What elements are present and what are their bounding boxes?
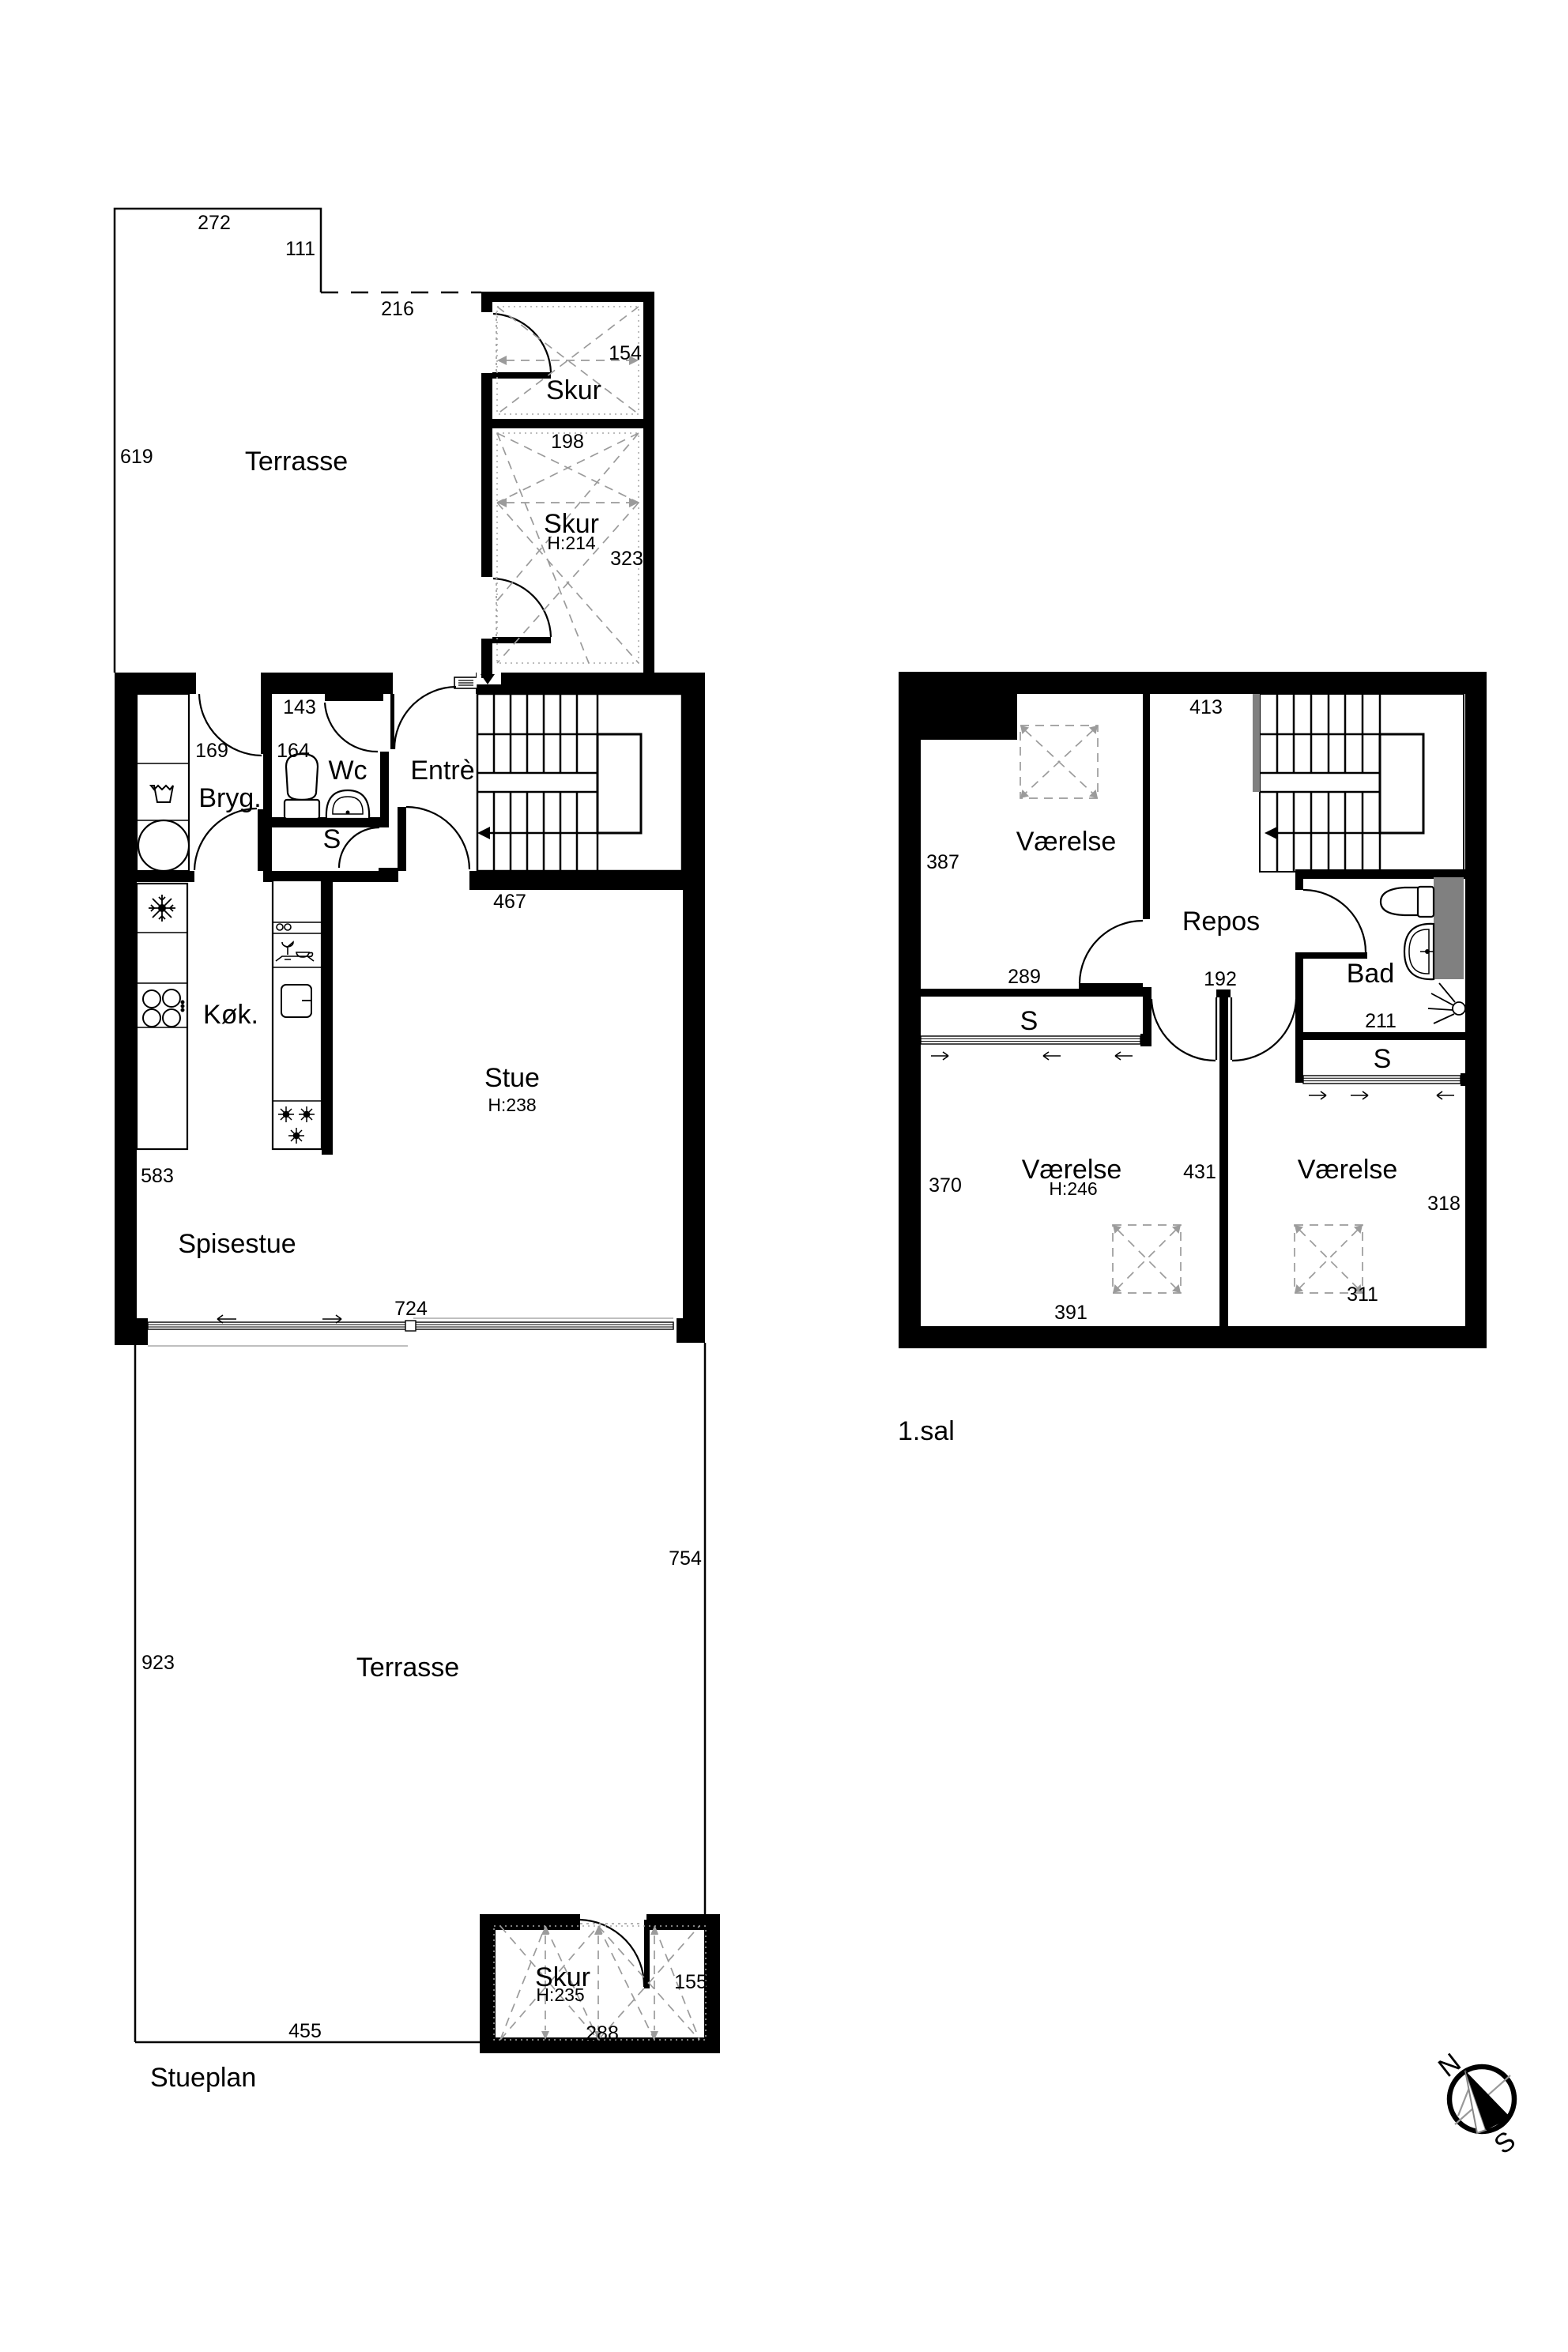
svg-text:455: 455 [288, 2020, 322, 2042]
svg-text:391: 391 [1054, 1302, 1087, 1324]
svg-text:370: 370 [929, 1174, 962, 1197]
svg-text:Stueplan: Stueplan [150, 2063, 256, 2093]
svg-text:H:238: H:238 [488, 1095, 536, 1115]
svg-text:724: 724 [394, 1298, 428, 1320]
svg-text:323: 323 [610, 548, 643, 570]
svg-text:155: 155 [674, 1971, 707, 1993]
svg-text:289: 289 [1008, 966, 1041, 988]
svg-text:169: 169 [195, 740, 228, 762]
svg-text:1.sal: 1.sal [898, 1416, 955, 1446]
svg-text:S: S [1374, 1044, 1392, 1074]
svg-text:923: 923 [141, 1652, 175, 1674]
svg-text:Værelse: Værelse [1016, 827, 1117, 857]
svg-text:583: 583 [141, 1165, 174, 1187]
svg-text:318: 318 [1427, 1193, 1461, 1215]
svg-text:211: 211 [1365, 1010, 1396, 1032]
svg-text:164: 164 [277, 740, 310, 762]
svg-text:467: 467 [493, 891, 526, 913]
svg-text:111: 111 [285, 238, 315, 260]
svg-text:198: 198 [551, 431, 584, 453]
svg-text:Køk.: Køk. [203, 1000, 258, 1030]
svg-text:272: 272 [198, 212, 231, 234]
svg-text:154: 154 [609, 342, 642, 364]
svg-text:H:235: H:235 [536, 1984, 584, 2005]
svg-text:Terrasse: Terrasse [245, 447, 348, 477]
svg-text:Skur: Skur [546, 375, 601, 405]
svg-text:288: 288 [586, 2022, 619, 2045]
svg-text:S: S [323, 824, 341, 854]
svg-text:Entrè: Entrè [410, 756, 474, 786]
svg-text:Terrasse: Terrasse [356, 1653, 459, 1683]
svg-text:H:246: H:246 [1049, 1178, 1097, 1199]
svg-text:Stue: Stue [484, 1063, 540, 1093]
svg-text:Bad: Bad [1347, 959, 1395, 989]
svg-text:Bryg.: Bryg. [198, 783, 261, 813]
svg-text:619: 619 [120, 446, 153, 468]
svg-text:387: 387 [926, 851, 959, 873]
svg-text:Spisestue: Spisestue [178, 1229, 296, 1259]
svg-text:413: 413 [1189, 696, 1223, 718]
svg-text:H:214: H:214 [547, 533, 596, 553]
svg-text:Wc: Wc [328, 756, 367, 786]
svg-text:431: 431 [1183, 1161, 1216, 1183]
svg-text:Værelse: Værelse [1298, 1155, 1398, 1185]
svg-text:S: S [1020, 1006, 1038, 1036]
svg-text:754: 754 [669, 1547, 702, 1570]
svg-text:216: 216 [381, 298, 414, 320]
svg-text:143: 143 [283, 696, 316, 718]
svg-text:192: 192 [1204, 968, 1237, 990]
svg-text:Repos: Repos [1182, 906, 1260, 937]
svg-text:311: 311 [1347, 1283, 1378, 1306]
